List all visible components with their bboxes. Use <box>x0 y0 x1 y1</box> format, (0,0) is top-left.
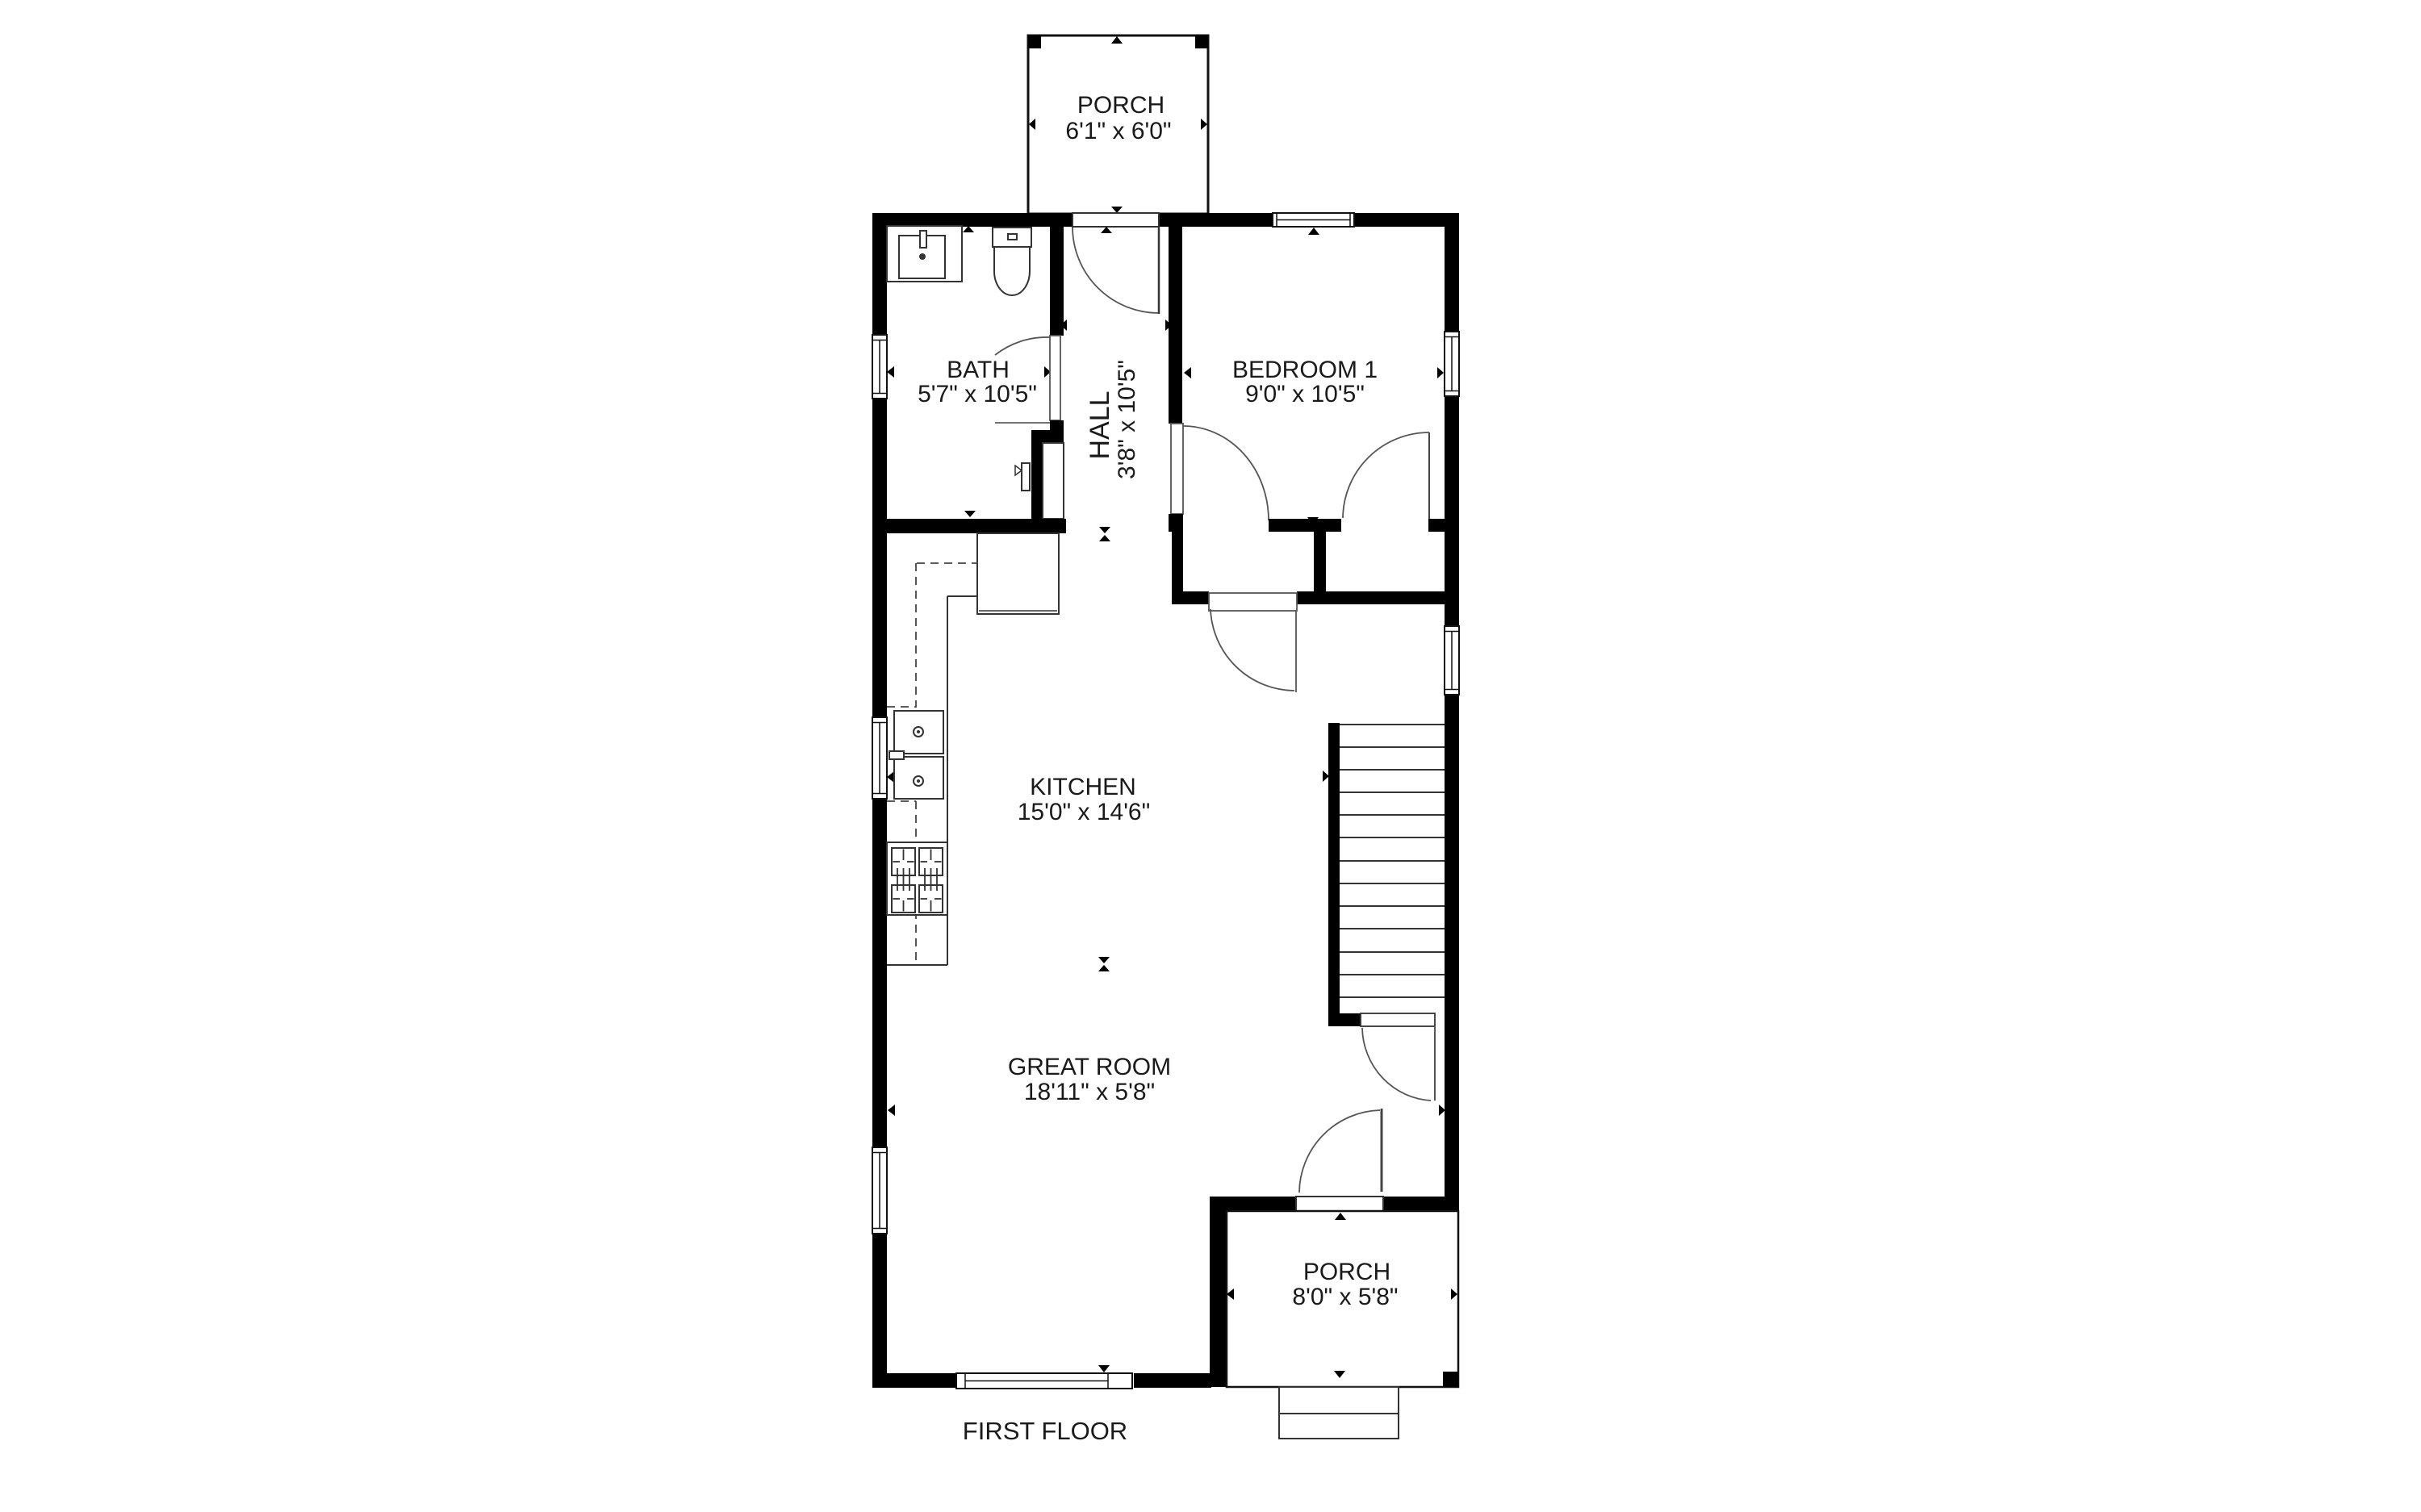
svg-text:15'0" x 14'6": 15'0" x 14'6" <box>1018 799 1151 825</box>
svg-text:6'1" x 6'0": 6'1" x 6'0" <box>1065 118 1171 144</box>
svg-text:5'7" x 10'5": 5'7" x 10'5" <box>918 381 1037 407</box>
svg-text:BATH: BATH <box>947 357 1010 383</box>
svg-text:18'11" x 5'8": 18'11" x 5'8" <box>1024 1079 1155 1105</box>
svg-text:PORCH: PORCH <box>1303 1259 1390 1285</box>
svg-text:GREAT ROOM: GREAT ROOM <box>1008 1054 1171 1080</box>
svg-text:8'0" x 5'8": 8'0" x 5'8" <box>1292 1284 1398 1310</box>
svg-text:BEDROOM 1: BEDROOM 1 <box>1232 357 1378 383</box>
svg-text:PORCH: PORCH <box>1077 92 1165 119</box>
svg-text:KITCHEN: KITCHEN <box>1030 774 1136 800</box>
svg-text:3'8" x 10'5": 3'8" x 10'5" <box>1114 360 1140 479</box>
svg-text:9'0" x 10'5": 9'0" x 10'5" <box>1245 381 1365 407</box>
svg-text:FIRST FLOOR: FIRST FLOOR <box>963 1417 1127 1445</box>
svg-text:HALL: HALL <box>1085 391 1115 459</box>
